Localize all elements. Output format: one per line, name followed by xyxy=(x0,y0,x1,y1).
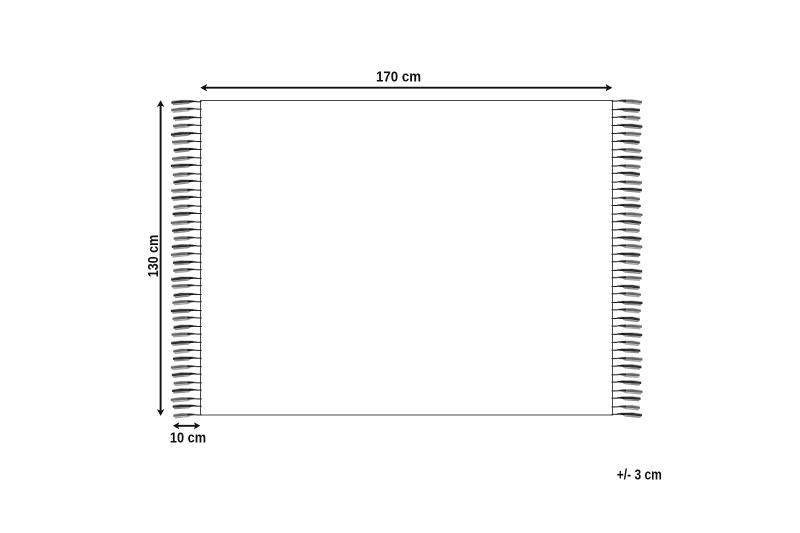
svg-text:130 cm: 130 cm xyxy=(145,235,162,278)
svg-text:170 cm: 170 cm xyxy=(376,68,421,85)
svg-text:+/- 3 cm: +/- 3 cm xyxy=(617,467,662,484)
svg-text:10 cm: 10 cm xyxy=(170,430,206,447)
